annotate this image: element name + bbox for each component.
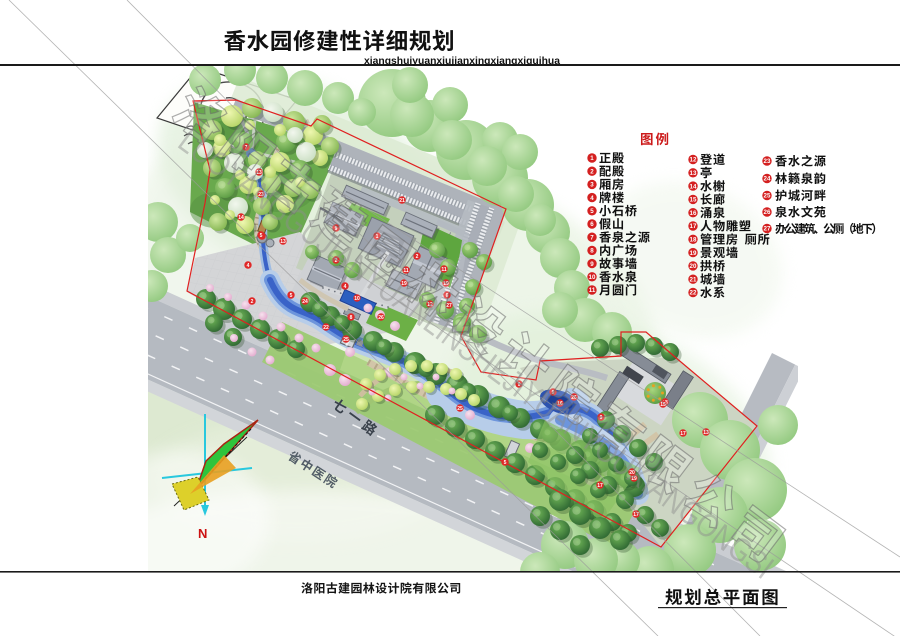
svg-text:5: 5 <box>260 233 263 239</box>
svg-text:2: 2 <box>251 299 254 305</box>
svg-text:11: 11 <box>589 287 596 294</box>
svg-text:13: 13 <box>690 170 697 177</box>
svg-text:24: 24 <box>302 299 308 305</box>
svg-text:12: 12 <box>690 157 697 164</box>
svg-text:25: 25 <box>457 406 463 412</box>
svg-text:21: 21 <box>399 198 405 204</box>
svg-text:18: 18 <box>690 237 697 244</box>
svg-text:4: 4 <box>590 195 594 202</box>
svg-text:27: 27 <box>764 226 771 233</box>
svg-text:25: 25 <box>764 193 771 200</box>
svg-text:4: 4 <box>344 284 347 290</box>
svg-text:21: 21 <box>690 276 697 283</box>
svg-text:11: 11 <box>403 268 409 274</box>
svg-text:11: 11 <box>441 267 447 273</box>
svg-text:7: 7 <box>590 234 594 241</box>
svg-text:2: 2 <box>590 168 594 175</box>
svg-text:13: 13 <box>280 239 286 245</box>
svg-text:22: 22 <box>690 290 697 297</box>
svg-text:26: 26 <box>764 209 771 216</box>
svg-text:17: 17 <box>597 483 603 489</box>
svg-text:4: 4 <box>247 263 250 269</box>
svg-text:14: 14 <box>238 215 244 221</box>
svg-text:23: 23 <box>764 158 771 165</box>
svg-text:10: 10 <box>589 274 596 281</box>
svg-text:22: 22 <box>323 325 329 331</box>
svg-text:19: 19 <box>690 250 697 257</box>
svg-text:8: 8 <box>350 315 353 321</box>
svg-text:16: 16 <box>690 210 697 217</box>
svg-text:6: 6 <box>590 221 594 228</box>
svg-text:14: 14 <box>690 183 697 190</box>
svg-text:3: 3 <box>590 182 594 189</box>
svg-text:8: 8 <box>590 248 594 255</box>
svg-text:5: 5 <box>590 208 594 215</box>
svg-text:25: 25 <box>343 337 349 343</box>
svg-text:5: 5 <box>504 460 507 466</box>
svg-text:24: 24 <box>764 176 771 183</box>
svg-text:26: 26 <box>378 315 384 321</box>
svg-text:27: 27 <box>446 303 452 309</box>
svg-text:17: 17 <box>633 512 639 518</box>
svg-text:10: 10 <box>354 296 360 302</box>
svg-text:1: 1 <box>590 155 594 162</box>
svg-text:9: 9 <box>590 261 594 268</box>
svg-text:17: 17 <box>680 431 686 437</box>
svg-text:15: 15 <box>690 197 697 204</box>
svg-text:20: 20 <box>690 263 697 270</box>
svg-text:17: 17 <box>690 223 697 230</box>
svg-text:2: 2 <box>416 254 419 260</box>
svg-text:N: N <box>198 526 207 541</box>
svg-text:xiangshuiyuanxiujianxingxiangx: xiangshuiyuanxiujianxingxiangxiguihua <box>364 55 560 67</box>
svg-text:5: 5 <box>290 293 293 299</box>
